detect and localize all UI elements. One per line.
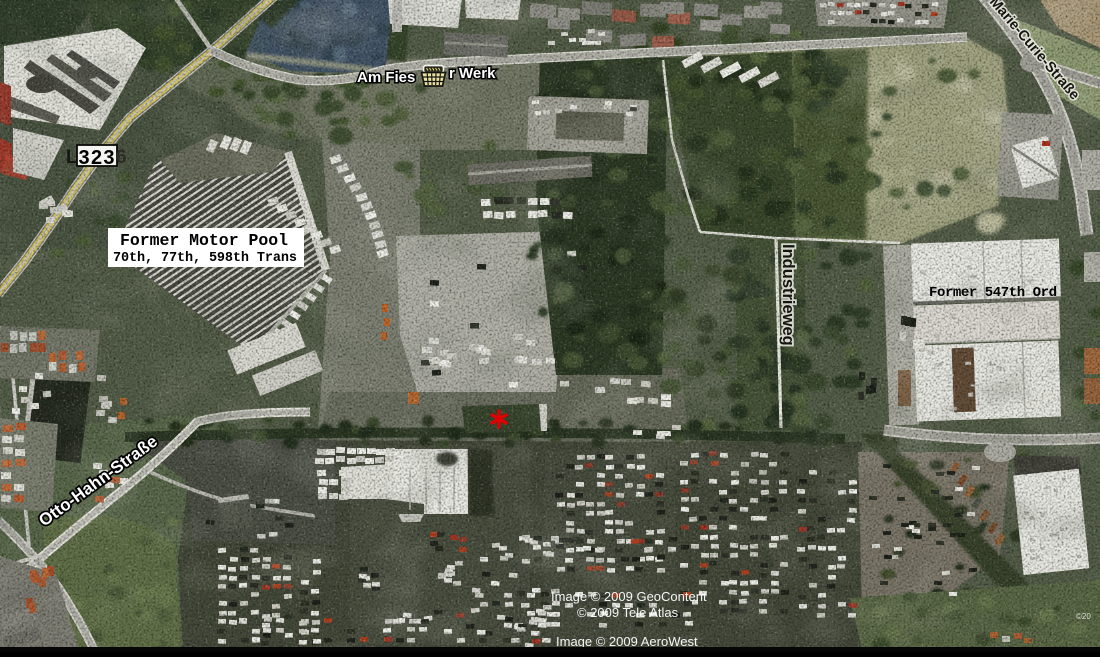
svg-text:323: 323 (79, 147, 115, 169)
svg-text:Industrieweg: Industrieweg (779, 244, 797, 346)
svg-text:Former Motor Pool: Former Motor Pool (120, 231, 288, 250)
svg-text:Am Fies: Am Fies (357, 69, 415, 86)
svg-text:Image © 2009 GeoContent: Image © 2009 GeoContent (551, 589, 707, 604)
svg-text:©20: ©20 (1076, 612, 1091, 621)
svg-text:© 2009 Tele Atlas: © 2009 Tele Atlas (577, 605, 679, 620)
svg-text:L: L (66, 147, 78, 168)
svg-text:Image © 2009 AeroWest: Image © 2009 AeroWest (556, 634, 698, 649)
svg-text:6: 6 (116, 147, 127, 168)
svg-text:Former 547th Ord: Former 547th Ord (929, 285, 1057, 301)
svg-text:r Werk: r Werk (449, 65, 496, 82)
svg-text:70th, 77th, 598th Trans: 70th, 77th, 598th Trans (113, 251, 297, 266)
